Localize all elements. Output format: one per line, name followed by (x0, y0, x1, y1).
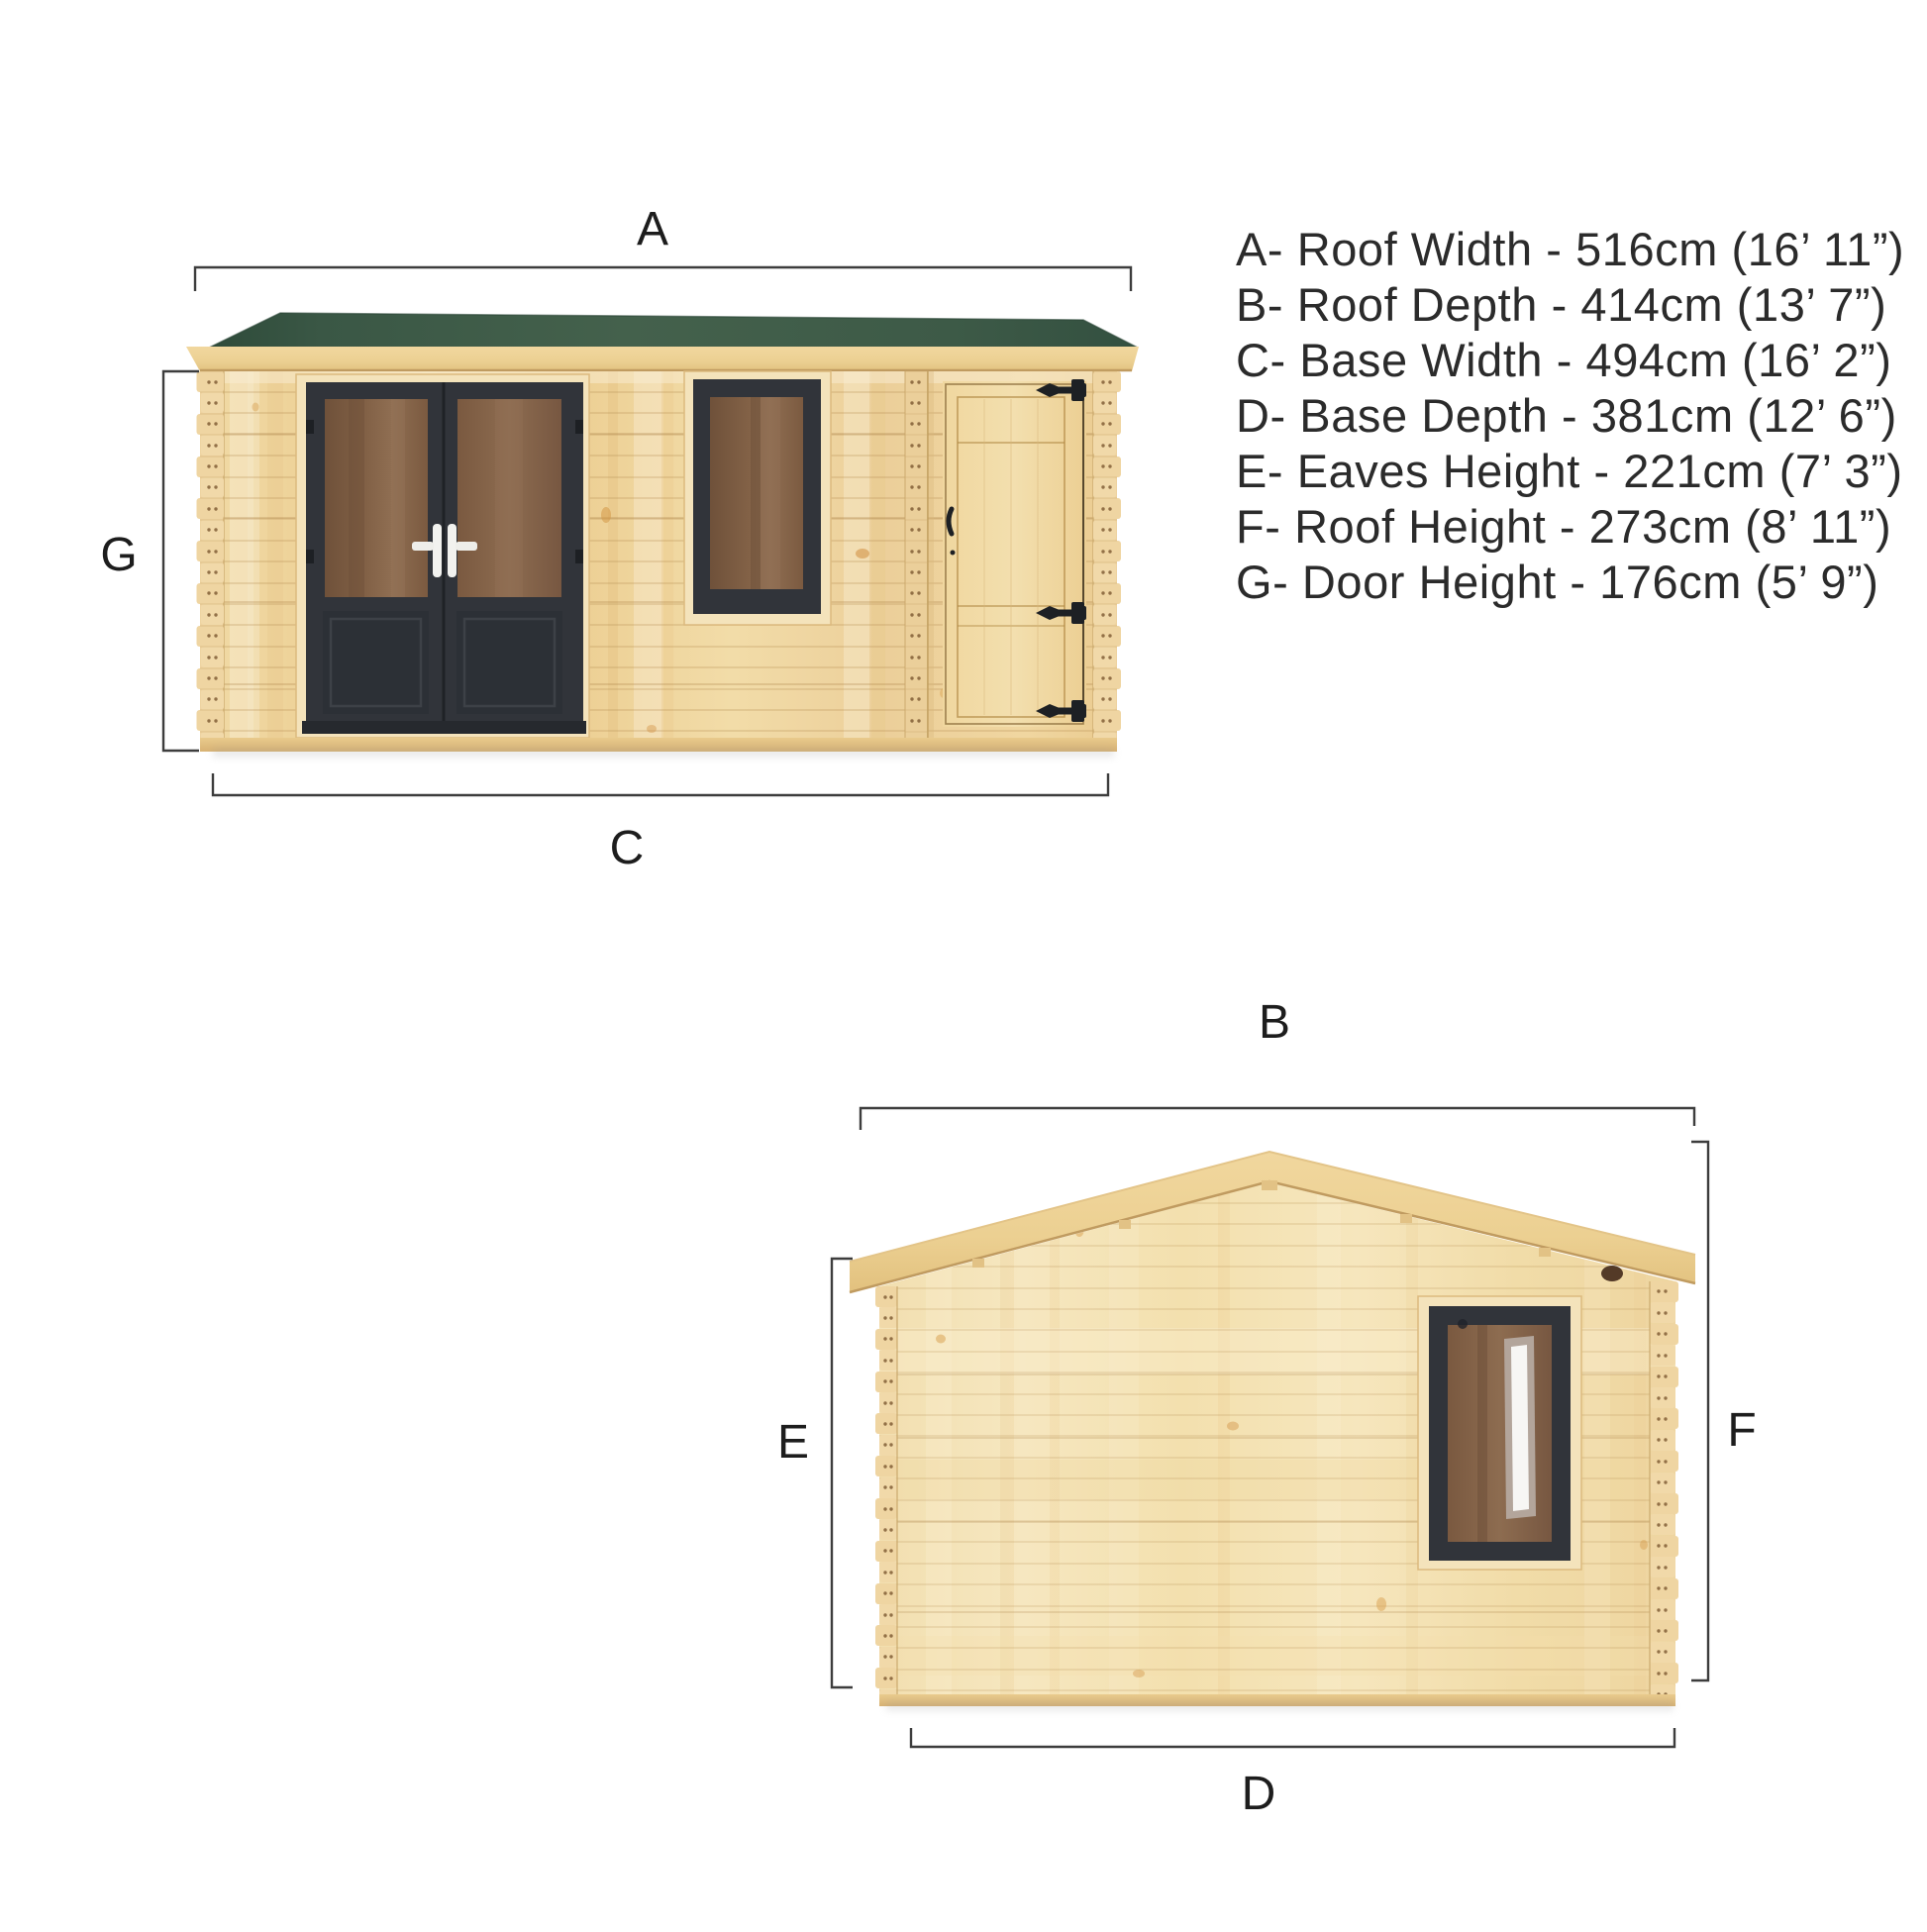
svg-text:C: C (610, 822, 645, 874)
svg-text:D: D (1242, 1768, 1276, 1820)
svg-text:D- Base Depth - 381cm (12’ 6”): D- Base Depth - 381cm (12’ 6”) (1236, 389, 1897, 442)
svg-text:B- Roof Depth - 414cm (13’ 7”): B- Roof Depth - 414cm (13’ 7”) (1236, 278, 1886, 331)
svg-text:C- Base Width - 494cm (16’ 2”): C- Base Width - 494cm (16’ 2”) (1236, 334, 1892, 386)
svg-text:E- Eaves Height - 221cm (7’ 3”: E- Eaves Height - 221cm (7’ 3”) (1236, 445, 1903, 497)
svg-text:A: A (637, 203, 668, 255)
svg-text:B: B (1259, 996, 1290, 1049)
svg-text:G- Door Height - 176cm (5’ 9”): G- Door Height - 176cm (5’ 9”) (1236, 556, 1878, 608)
svg-text:A- Roof Width - 516cm (16’ 11”: A- Roof Width - 516cm (16’ 11”) (1236, 223, 1904, 275)
svg-text:G: G (100, 529, 137, 581)
svg-text:E: E (777, 1416, 809, 1469)
svg-text:F- Roof Height - 273cm (8’ 11”: F- Roof Height - 273cm (8’ 11”) (1236, 500, 1891, 553)
svg-text:F: F (1727, 1404, 1756, 1457)
